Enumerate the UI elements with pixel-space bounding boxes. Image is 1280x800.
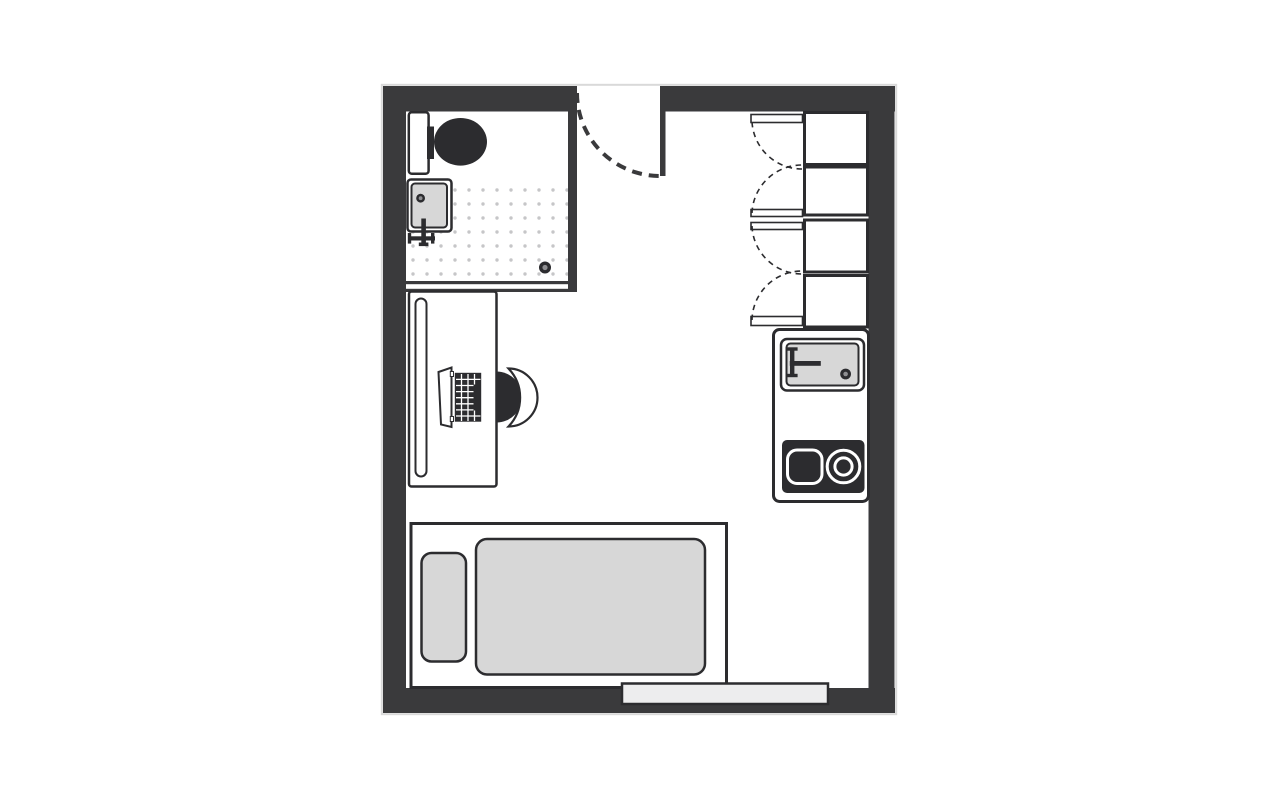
wall-left: [383, 86, 406, 713]
floor-plan: [0, 0, 1280, 800]
kitchen-faucet-stem: [790, 361, 821, 366]
laptop-screen: [439, 368, 452, 428]
shower-drain-center: [542, 265, 547, 270]
bathroom-partition-side: [568, 110, 577, 292]
laptop-trackpad: [474, 385, 482, 411]
shower-drain: [539, 262, 551, 274]
wall-right: [869, 86, 895, 713]
laptop: [439, 368, 482, 428]
entrance-door-swing: [577, 93, 660, 176]
wardrobe-section-4: [805, 276, 868, 328]
toilet-tank: [409, 112, 429, 173]
toilet-bowl: [434, 118, 487, 166]
bathroom-faucet-handle-right: [431, 233, 434, 244]
bed: [411, 524, 727, 688]
wardrobe-door-leaf-1: [751, 115, 803, 123]
kitchen-sink-drain-center: [843, 372, 848, 377]
wall-top-left-segment: [383, 86, 577, 112]
pillow: [422, 553, 467, 662]
laptop-hinge-bottom: [450, 417, 453, 422]
kitchen: [774, 330, 869, 502]
wardrobe: [751, 113, 868, 328]
kitchen-faucet-handle-top: [787, 347, 798, 350]
entrance-door-jamb: [660, 108, 666, 176]
wardrobe-door-leaf-3: [751, 223, 803, 230]
wardrobe-door-leaf-2: [751, 210, 803, 217]
workspace: [409, 292, 538, 487]
wardrobe-door-swing-4: [752, 271, 803, 320]
laptop-hinge-top: [450, 372, 453, 377]
floor-plan-svg: [0, 0, 1280, 800]
duvet: [476, 539, 705, 675]
cooktop: [782, 440, 865, 493]
bathroom-faucet-stem: [421, 219, 426, 247]
kitchen-faucet-handle-bottom: [787, 374, 798, 377]
wardrobe-door-leaf-4: [751, 317, 803, 326]
wardrobe-door-swing-3: [752, 226, 803, 274]
bathroom-partition-bottom-outer: [406, 281, 577, 284]
wardrobe-door-swing-2: [752, 165, 803, 213]
window: [622, 684, 828, 705]
bathroom-faucet-base: [419, 243, 429, 247]
wardrobe-section-3: [805, 220, 868, 272]
wardrobe-section-2: [805, 167, 868, 215]
bathroom-sink-basin: [412, 184, 448, 228]
kitchen-faucet-crossbar: [790, 349, 794, 377]
wardrobe-door-swing-1: [752, 122, 803, 169]
wardrobe-section-1: [805, 113, 868, 165]
toilet: [409, 112, 487, 173]
wall-top-right-segment: [660, 86, 895, 112]
bathroom-sink-drain-center: [419, 196, 423, 200]
desk-shelf: [416, 299, 427, 477]
toilet-connector: [427, 127, 434, 160]
bathroom-faucet-handle-left: [408, 233, 411, 244]
